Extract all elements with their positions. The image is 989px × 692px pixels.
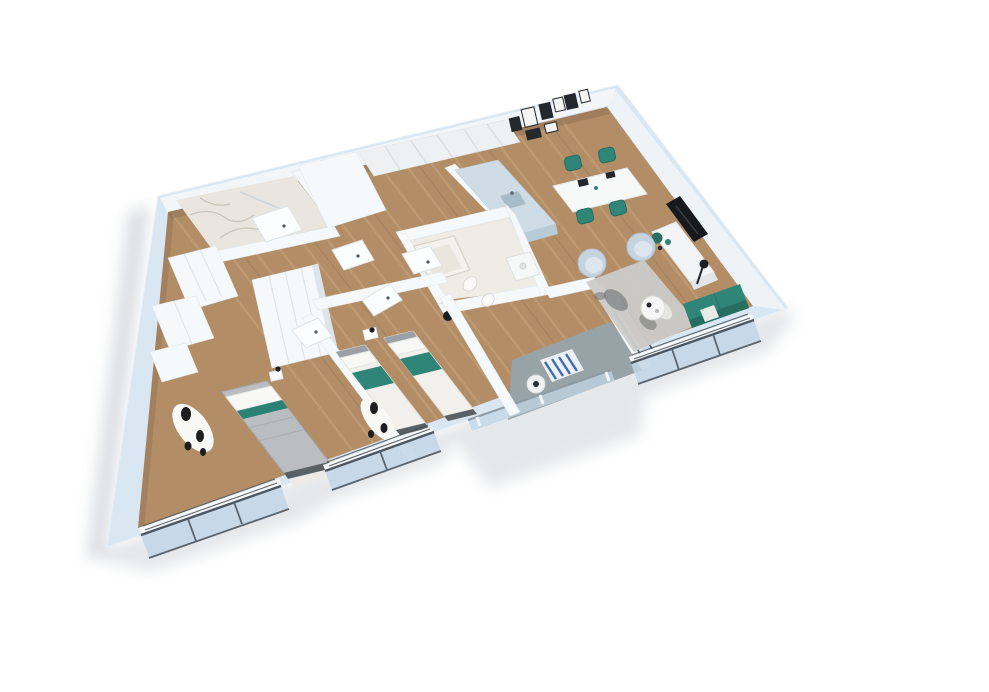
door-handle bbox=[386, 296, 389, 299]
cowhide-patch bbox=[368, 430, 374, 438]
nightstand bbox=[269, 370, 283, 381]
picture-frame bbox=[579, 89, 590, 103]
table-lamp bbox=[369, 327, 374, 332]
floorplan-canvas bbox=[0, 0, 989, 692]
floor-lamp-head bbox=[700, 260, 709, 269]
cowhide-patch bbox=[181, 407, 191, 421]
console-decor bbox=[665, 239, 671, 245]
rug-pattern bbox=[594, 292, 606, 300]
table-decor bbox=[594, 186, 598, 190]
cowhide-patch bbox=[185, 442, 192, 451]
door-handle bbox=[314, 330, 317, 333]
cowhide-patch bbox=[200, 448, 206, 456]
cowhide-patch bbox=[196, 430, 204, 442]
armchair-seat bbox=[585, 257, 603, 273]
cowhide-patch bbox=[381, 423, 388, 433]
door-handle bbox=[356, 254, 359, 257]
door-handle bbox=[426, 260, 429, 263]
dining-chair bbox=[609, 199, 628, 216]
dining-chair bbox=[576, 207, 595, 224]
coffee-table-item bbox=[647, 303, 652, 308]
armchair bbox=[627, 233, 655, 261]
balcony-table-item bbox=[533, 381, 539, 387]
cowhide-patch bbox=[370, 402, 378, 414]
picture-frame bbox=[553, 97, 566, 112]
dining-chair bbox=[564, 154, 583, 171]
dining-chair bbox=[598, 146, 617, 163]
door-handle bbox=[282, 224, 285, 227]
coffee-table-item bbox=[655, 309, 659, 313]
faucet bbox=[510, 191, 514, 195]
console-decor bbox=[658, 246, 662, 250]
table-lamp bbox=[275, 366, 280, 371]
armchair bbox=[578, 249, 606, 277]
coffee-table bbox=[641, 296, 665, 320]
picture-frame bbox=[544, 122, 558, 133]
vanity-sink bbox=[520, 263, 526, 269]
floorplan-render bbox=[0, 0, 989, 692]
armchair-seat bbox=[634, 241, 652, 257]
